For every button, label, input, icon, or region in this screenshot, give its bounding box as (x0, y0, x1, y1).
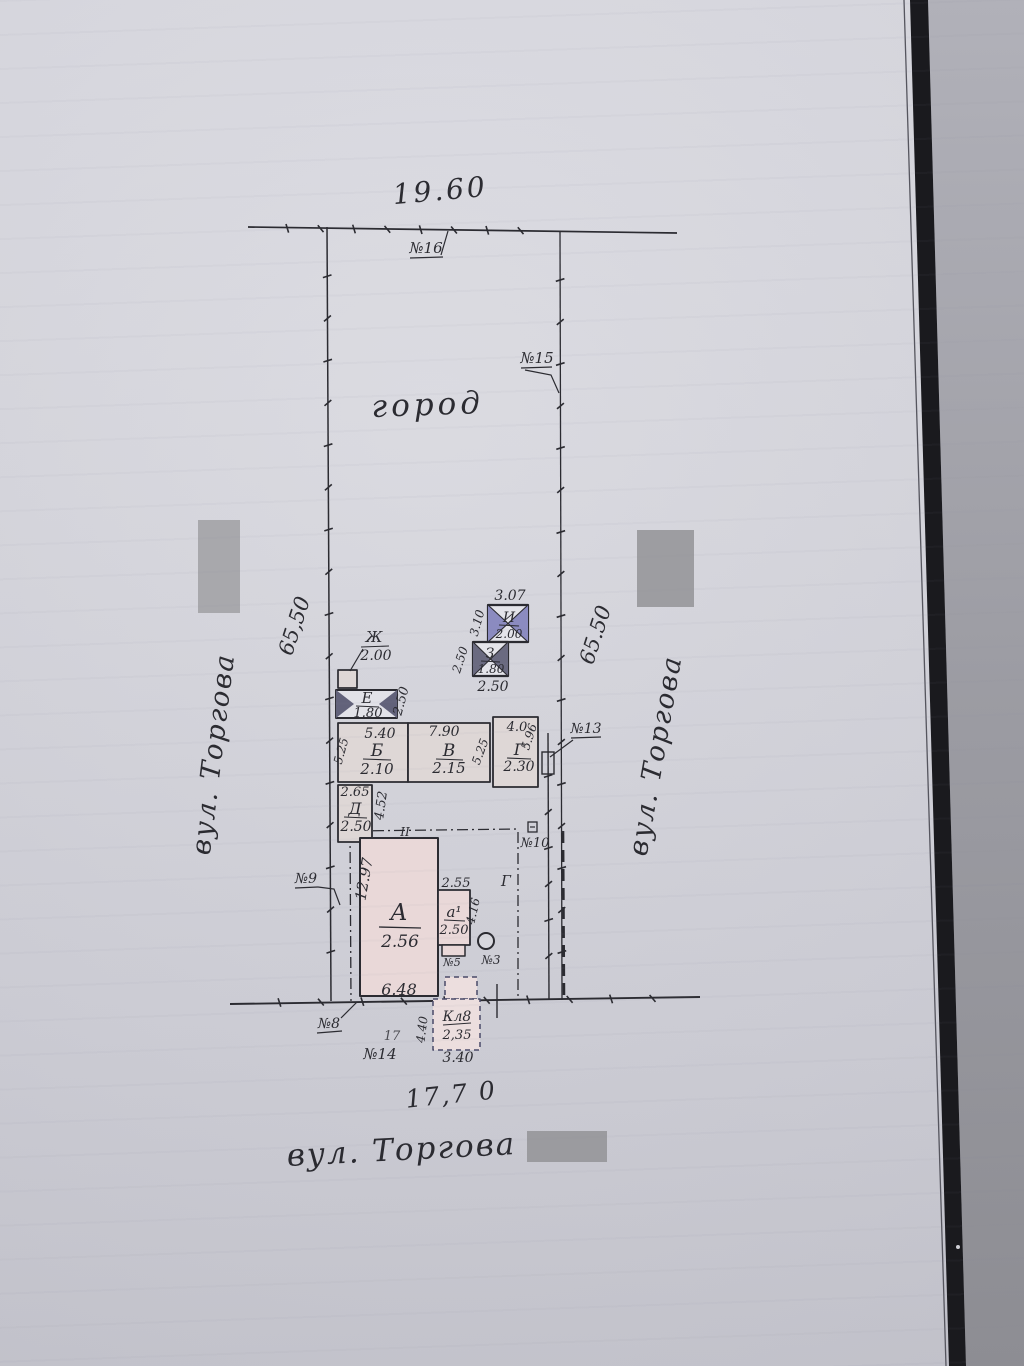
marker-13-underline (571, 737, 601, 738)
buildings: Ж 2.00 Е 1.80 2.50 5.40 5.25 Б 2.10 (331, 588, 540, 1066)
building-b-dim-top: 5.40 (364, 726, 395, 742)
boundary-dashed-right (563, 831, 564, 1001)
well: №3 (478, 933, 501, 967)
structure-kl-label: Кл8 (442, 1009, 472, 1025)
marker-9: №9 (294, 871, 317, 887)
building-i-dim-left: 3.10 (467, 608, 488, 638)
building-z-dim-bottom: 2.50 (476, 679, 508, 695)
building-d-value: 2.50 (339, 819, 371, 835)
building-d-dim-top: 2.65 (340, 785, 370, 800)
structure-kl-value: 2,35 (442, 1028, 472, 1043)
building-b-label: Б (370, 741, 384, 761)
scan-edge (904, 0, 1024, 1366)
building-i-label: И (502, 610, 516, 626)
building-e-value: 1.80 (354, 706, 383, 721)
building-z-dim-left: 2.50 (449, 645, 471, 676)
building-v: 7.90 В 2.15 5.25 (408, 723, 491, 782)
building-z: 2.50 З 1.80 2.50 (449, 642, 509, 695)
building-a1: 2.55 а¹ 2.50 4.16 №5 (438, 876, 483, 969)
building-i-value: 2.00 (495, 627, 523, 641)
building-zh: Ж 2.00 (338, 628, 392, 688)
top-dimension: 19.60 (391, 170, 489, 211)
building-a1-value: 2.50 (439, 923, 469, 938)
marker-10: №10 (520, 836, 550, 851)
building-zh-value: 2.00 (359, 648, 391, 664)
marker-15-underline (521, 367, 552, 368)
marker-16: №16 (408, 239, 443, 257)
marker-15-leader (525, 370, 559, 393)
street-label-right: вул. Торгова (623, 653, 689, 858)
building-e: Е 1.80 2.50 (336, 685, 413, 721)
marker-13: №13 (569, 721, 601, 737)
building-a: 12.97 А 2.56 6.48 (351, 838, 438, 999)
building-v-dim-top: 7.90 (428, 724, 459, 740)
bottom-dimension: 17,7 0 (404, 1075, 498, 1113)
building-v-label: В (442, 741, 456, 761)
building-d: 2.65 Д 2.50 4.52 (338, 785, 391, 842)
marker-5: №5 (442, 956, 460, 969)
fence-dashdot-left (350, 831, 351, 1001)
building-i-dim-top: 3.07 (494, 588, 525, 604)
binding-dot (956, 1245, 960, 1249)
building-d-dim-right: 4.52 (372, 790, 391, 822)
fence-inner-right (548, 733, 549, 999)
building-zh-outline (338, 670, 357, 688)
side-dim-left: 65,50 (274, 594, 315, 659)
porch-outline (442, 945, 465, 956)
redaction-right (637, 530, 694, 607)
faint-parcel-number: 17 (384, 1029, 401, 1044)
building-b: 5.40 5.25 Б 2.10 (331, 723, 408, 782)
building-a1-dim-top: 2.55 (441, 876, 471, 891)
building-zh-label: Ж (365, 628, 384, 646)
plan-drawing: 19.60 город 65,50 65.50 вул. Торгова вул… (0, 0, 1024, 1366)
structure-kl-dim-left: 4.40 (413, 1015, 430, 1045)
building-g-value: 2.30 (502, 759, 534, 775)
side-dim-right: 65.50 (575, 603, 616, 668)
boundary-ticks-left (323, 275, 335, 953)
street-label-left: вул. Торгова (186, 651, 242, 856)
fence-dashdot-top (352, 829, 518, 831)
marker-8-leader (341, 1002, 357, 1018)
building-i: 3.07 3.10 И 2.00 (467, 588, 528, 642)
building-e-label: Е (361, 689, 373, 707)
marker-8: №8 (317, 1016, 340, 1032)
building-z-label: З (486, 646, 495, 662)
redaction-left (198, 520, 240, 613)
frac-line (361, 646, 389, 647)
section-mark: II (399, 825, 410, 839)
marker-14: №14 (362, 1045, 396, 1063)
boundary-top (248, 227, 677, 233)
building-v-value: 2.15 (431, 759, 465, 777)
building-z-value: 1.80 (478, 662, 505, 676)
building-b-value: 2.10 (359, 760, 394, 778)
building-g: 4.0 5.96 Г 2.30 (493, 717, 540, 787)
building-d-label: Д (347, 799, 362, 818)
gate-mark-letter: Г (500, 872, 512, 890)
structure-kl-dim-bottom: 3.40 (442, 1050, 473, 1066)
marker-15: №15 (519, 349, 553, 367)
marker-3: №3 (481, 953, 501, 967)
building-g-label: Г (513, 740, 526, 759)
building-a-dim-bottom: 6.48 (381, 980, 417, 999)
well-circle (478, 933, 494, 949)
building-a-value: 2.56 (380, 932, 419, 952)
scanned-plan-page: 19.60 город 65,50 65.50 вул. Торгова вул… (0, 0, 1024, 1366)
building-a-label: А (388, 900, 407, 926)
building-a1-label: а¹ (447, 903, 462, 921)
garden-label: город (371, 385, 485, 425)
marker-16-underline (410, 257, 443, 258)
marker-9-underline (295, 887, 318, 888)
street-label-bottom: вул. Торгова (286, 1126, 517, 1174)
marker-9-leader (318, 887, 340, 905)
redaction-bottom (527, 1131, 607, 1162)
structure-kl-upper (445, 977, 477, 999)
